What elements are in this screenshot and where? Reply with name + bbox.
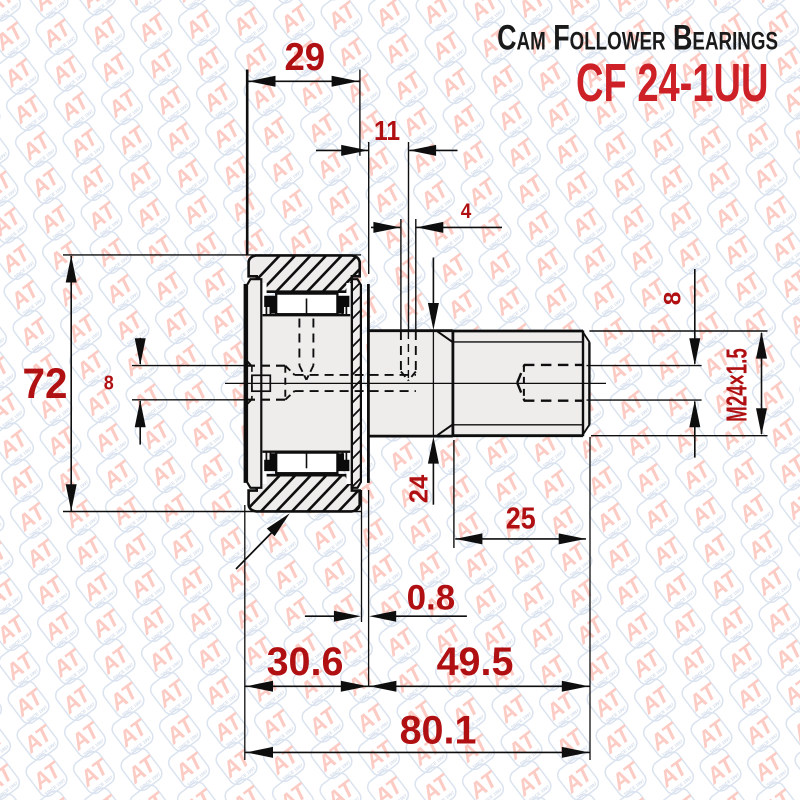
svg-text:CF 24-1UU: CF 24-1UU bbox=[576, 52, 768, 112]
svg-text:0.8: 0.8 bbox=[407, 579, 456, 618]
svg-text:Cam Follower Bearings: Cam Follower Bearings bbox=[497, 18, 778, 57]
svg-text:25: 25 bbox=[506, 502, 536, 536]
svg-text:8: 8 bbox=[660, 292, 687, 306]
svg-text:49.5: 49.5 bbox=[437, 640, 514, 684]
svg-text:72: 72 bbox=[23, 359, 68, 407]
svg-text:M24×1.5: M24×1.5 bbox=[722, 348, 754, 422]
svg-text:11: 11 bbox=[374, 115, 400, 147]
svg-text:24: 24 bbox=[406, 474, 434, 503]
svg-text:29: 29 bbox=[284, 35, 325, 78]
svg-text:4: 4 bbox=[461, 200, 472, 223]
svg-text:30.6: 30.6 bbox=[267, 640, 344, 684]
svg-text:8: 8 bbox=[104, 373, 114, 395]
svg-text:80.1: 80.1 bbox=[400, 709, 477, 753]
